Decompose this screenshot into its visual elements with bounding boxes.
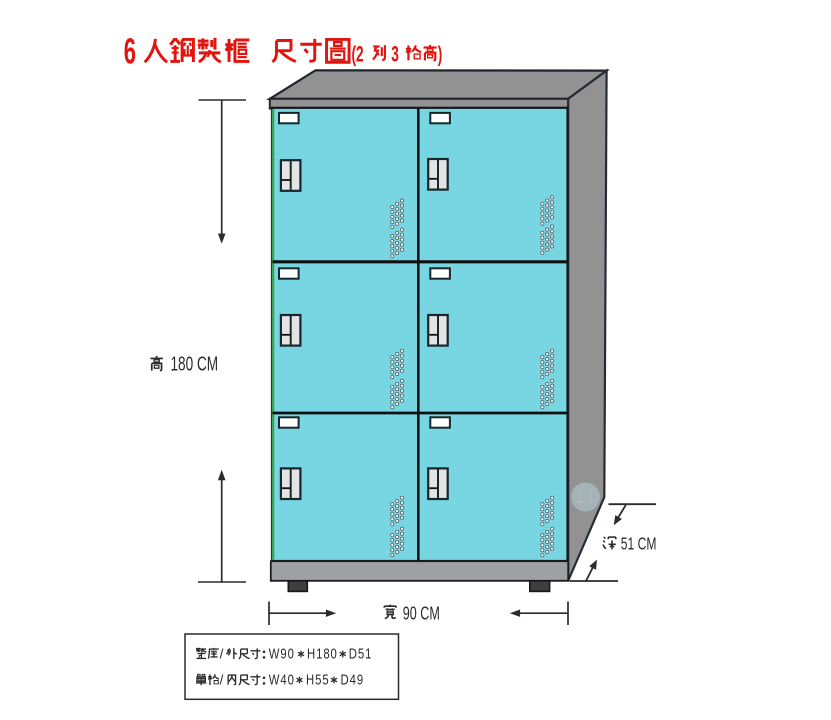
svg-text:180 CM: 180 CM xyxy=(171,353,219,375)
svg-text:6: 6 xyxy=(124,32,136,72)
svg-text:/: / xyxy=(220,673,224,688)
svg-text:H55: H55 xyxy=(306,671,330,688)
svg-text:(2: (2 xyxy=(352,41,364,66)
svg-text:W90: W90 xyxy=(269,645,295,662)
svg-text:/: / xyxy=(220,647,224,662)
svg-text:D51: D51 xyxy=(349,645,373,662)
svg-text:H180: H180 xyxy=(307,645,338,662)
svg-text:): ) xyxy=(438,41,443,66)
svg-text:3: 3 xyxy=(391,41,399,66)
svg-text:90 CM: 90 CM xyxy=(403,604,440,624)
svg-text:51 CM: 51 CM xyxy=(621,534,657,554)
svg-text:W40: W40 xyxy=(269,671,295,688)
svg-text:D49: D49 xyxy=(341,671,365,688)
